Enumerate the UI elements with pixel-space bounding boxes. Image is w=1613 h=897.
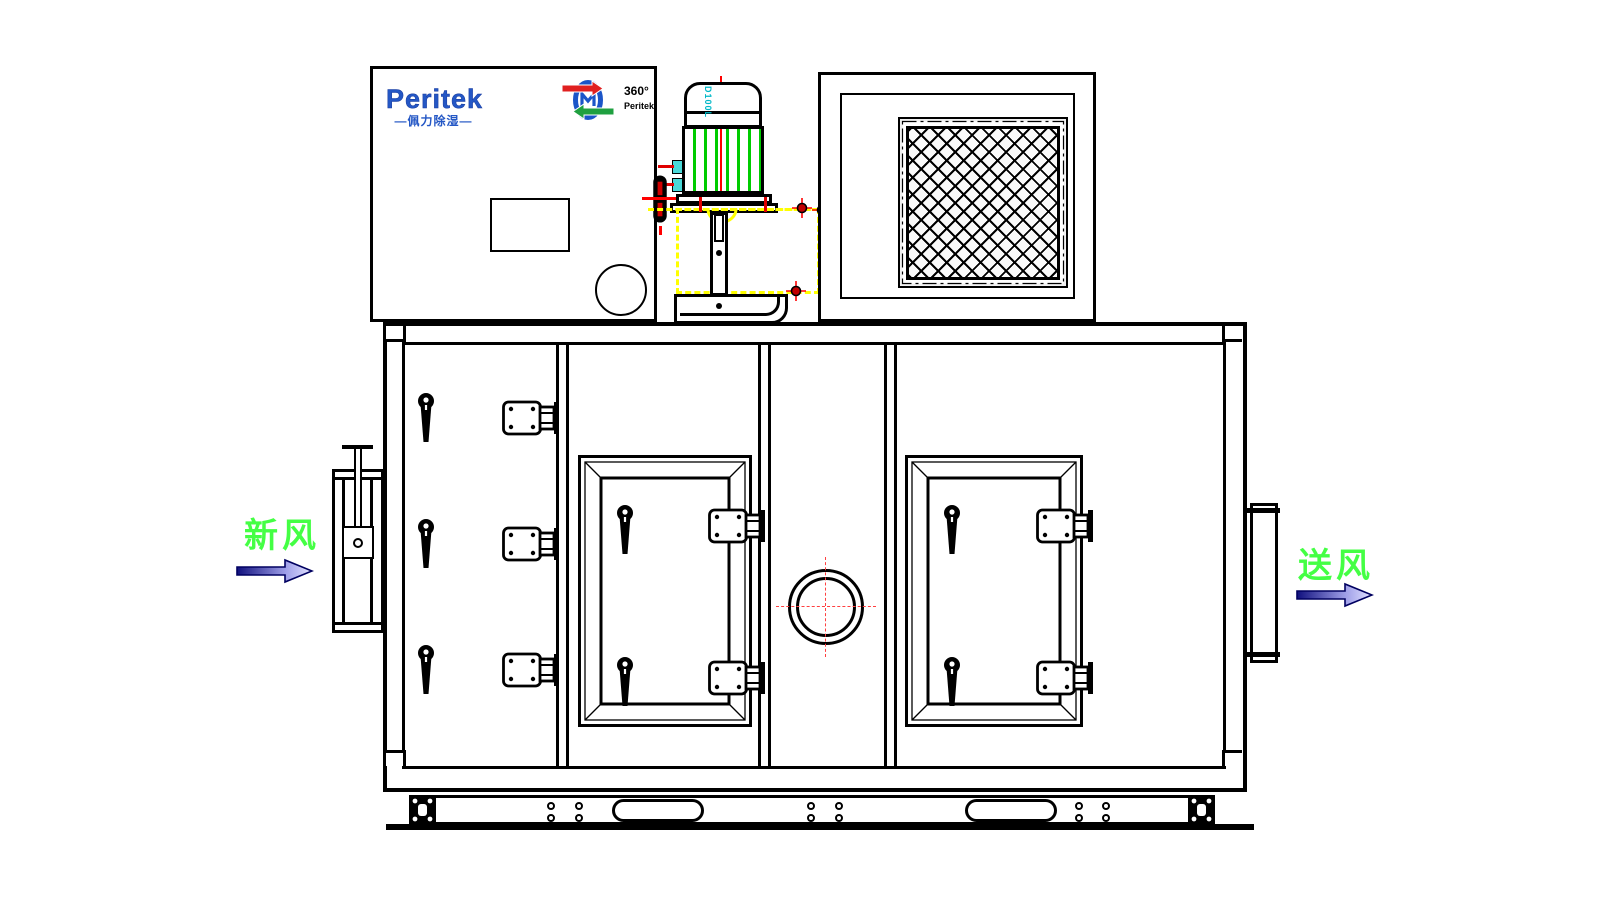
divider-1b xyxy=(566,345,569,766)
damper-actuator-pivot xyxy=(353,538,363,548)
outlet-flange-frame xyxy=(1250,503,1278,663)
door-handle xyxy=(616,656,634,708)
peritek-logo: Peritek —佩力除湿— xyxy=(386,86,481,129)
rotor-brand-text: Peritek xyxy=(624,101,655,111)
base-corner-plate-right-bolts xyxy=(1188,795,1215,825)
outlet-flange-bottom-bar xyxy=(1246,652,1280,657)
brand-tagline: —佩力除湿— xyxy=(386,112,481,129)
inlet-damper-bottom-bar xyxy=(332,622,384,625)
supply-air-arrow xyxy=(1296,582,1374,608)
door-hinge xyxy=(502,650,560,690)
corner-step-br xyxy=(1222,750,1242,766)
door-handle xyxy=(417,644,435,696)
damper-stem xyxy=(354,447,362,527)
divider-2b xyxy=(768,345,771,766)
base-hole xyxy=(1102,814,1110,822)
divider-2a xyxy=(758,345,761,766)
damper-handle-bar xyxy=(342,445,373,449)
corner-step-tr xyxy=(1222,326,1242,342)
drawing-canvas: Peritek —佩力除湿— 360° Peritek D100L xyxy=(0,0,1613,897)
door-handle xyxy=(417,518,435,570)
base-corner-plate-left-bolts xyxy=(409,795,436,825)
motor-body-fins xyxy=(682,126,764,194)
electrical-box xyxy=(490,198,570,252)
base-bolt-mark-left xyxy=(699,197,702,212)
door-handle xyxy=(943,504,961,556)
base-hole xyxy=(1075,802,1083,810)
rotor-logo: 360° Peritek xyxy=(558,78,666,122)
fresh-air-label: 新风 xyxy=(244,508,320,557)
base-hole xyxy=(1102,802,1110,810)
divider-3a xyxy=(884,345,887,766)
outlet-flange-top-bar xyxy=(1246,508,1280,513)
forklift-slot-left xyxy=(612,799,704,822)
base-hole xyxy=(807,802,815,810)
divider-3b xyxy=(894,345,897,766)
porthole-centerline-h xyxy=(776,606,876,607)
door-handle xyxy=(417,392,435,444)
base-hole xyxy=(547,802,555,810)
door-handle xyxy=(943,656,961,708)
door-handle xyxy=(616,504,634,556)
pedestal-base-bolt-dot xyxy=(716,303,722,309)
motor-frame-label: D100L xyxy=(703,86,713,118)
sight-hole xyxy=(595,264,647,316)
ground-line xyxy=(386,824,1254,830)
door-hinge xyxy=(708,658,766,698)
terminal-bolt-mark-1 xyxy=(658,165,674,168)
motor-fan-cowl xyxy=(684,82,762,128)
motor-cowl-band xyxy=(684,111,762,114)
anchor-bolt-tick xyxy=(659,226,662,235)
door-hinge xyxy=(502,398,560,438)
door-hinge xyxy=(502,524,560,564)
fresh-air-arrow xyxy=(236,558,314,584)
supply-air-label: 送风 xyxy=(1298,538,1374,587)
base-hole xyxy=(575,814,583,822)
inspection-porthole-inner xyxy=(796,577,856,637)
filter-mesh xyxy=(906,126,1060,280)
base-hole xyxy=(807,814,815,822)
door-hinge xyxy=(708,506,766,546)
red-bolt-1 xyxy=(792,198,812,218)
corner-step-tl xyxy=(386,326,406,342)
red-bolt-3 xyxy=(786,281,806,301)
base-bolt-mark-right xyxy=(764,197,767,212)
pedestal-base-inner-curve xyxy=(680,294,780,316)
base-hole xyxy=(1075,814,1083,822)
base-hole xyxy=(575,802,583,810)
porthole-centerline-v xyxy=(825,557,826,657)
forklift-slot-right xyxy=(965,799,1057,822)
pedestal-shaft xyxy=(714,214,724,242)
base-hole xyxy=(835,814,843,822)
corner-step-bl xyxy=(386,750,406,766)
base-hole xyxy=(835,802,843,810)
door-hinge xyxy=(1036,658,1094,698)
anchor-bolt-crossline xyxy=(642,197,676,200)
rotor-degree-text: 360° xyxy=(624,84,649,98)
door-hinge xyxy=(1036,506,1094,546)
brand-text: Peritek xyxy=(386,86,481,112)
pedestal-bolt-dot xyxy=(716,250,722,256)
base-hole xyxy=(547,814,555,822)
